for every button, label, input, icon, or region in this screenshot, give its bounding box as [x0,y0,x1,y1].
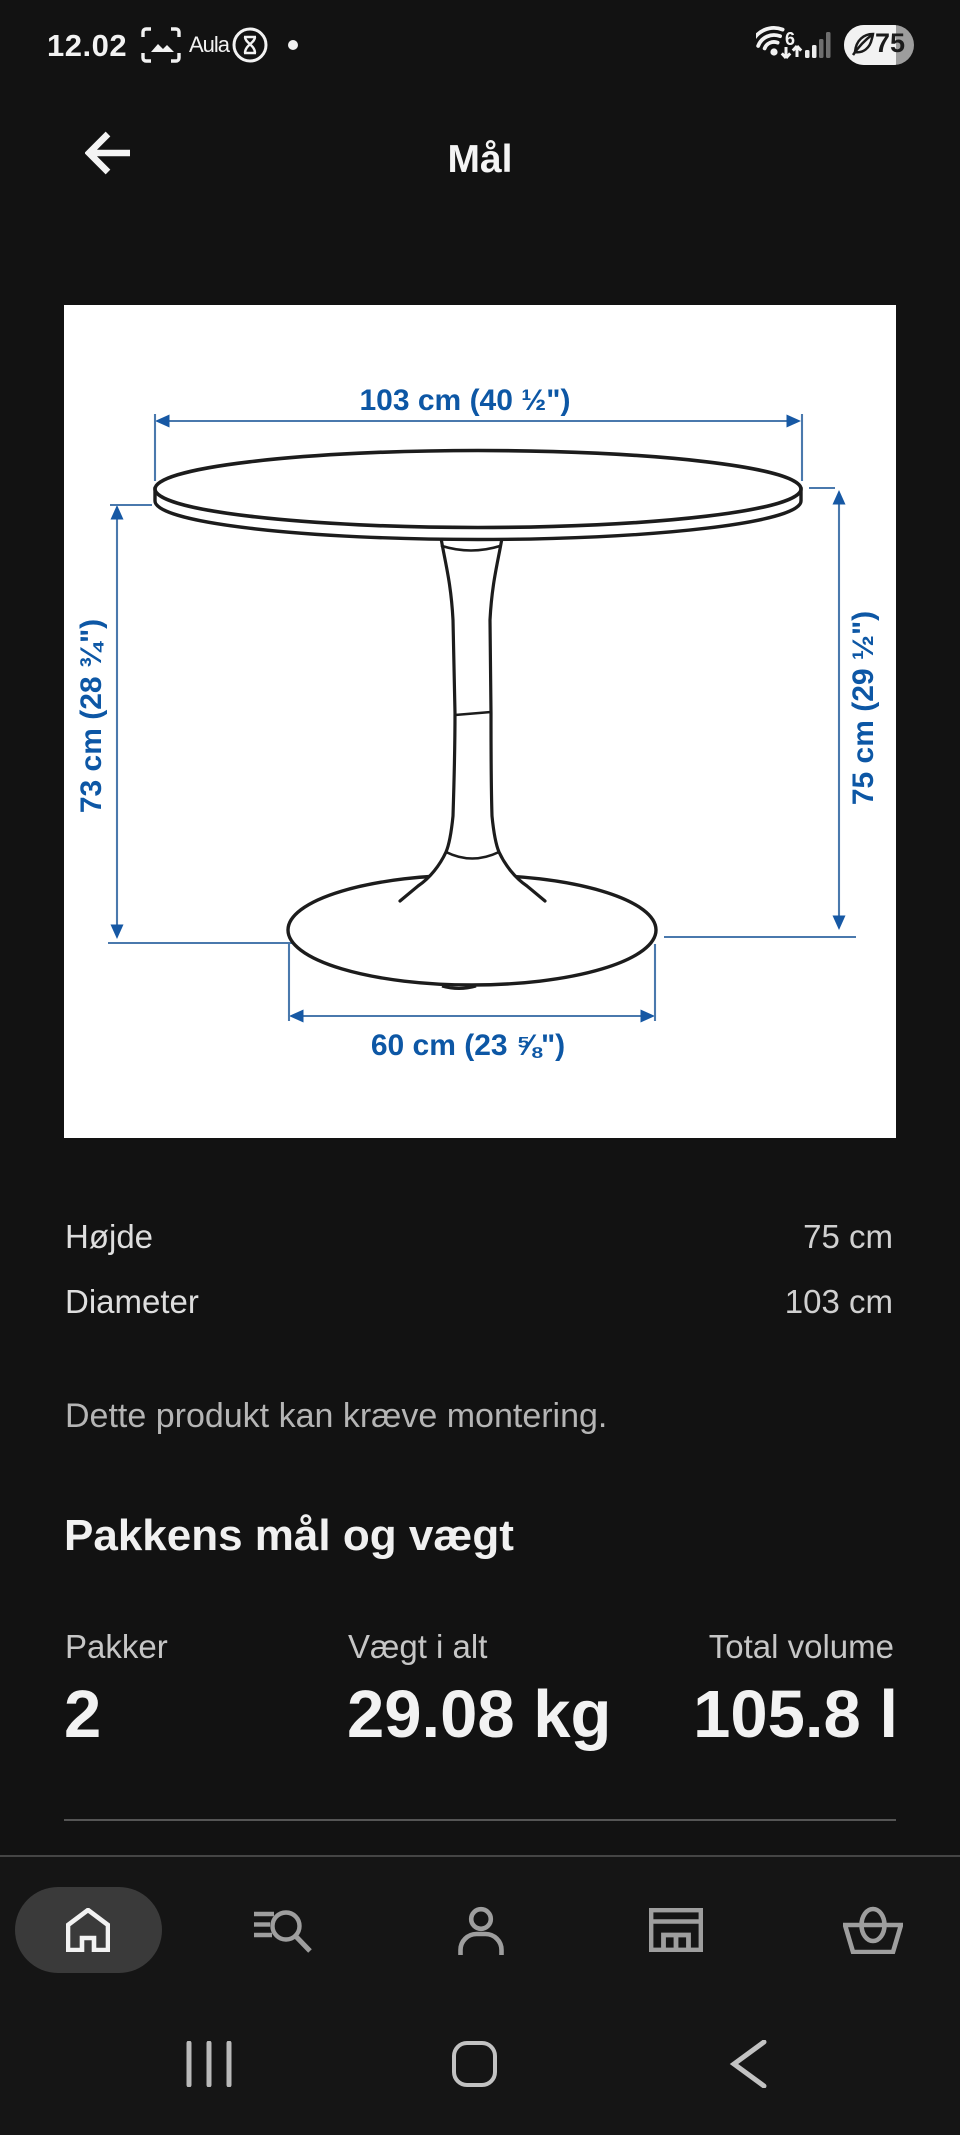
svg-text:6: 6 [785,29,795,49]
svg-text:73 cm (28 ¾"): 73 cm (28 ¾") [75,619,108,813]
svg-text:75 cm (29 ½"): 75 cm (29 ½") [847,611,880,805]
svg-text:103 cm (40 ½"): 103 cm (40 ½") [359,384,570,417]
svg-text:60 cm (23 ⅝"): 60 cm (23 ⅝") [371,1029,565,1062]
